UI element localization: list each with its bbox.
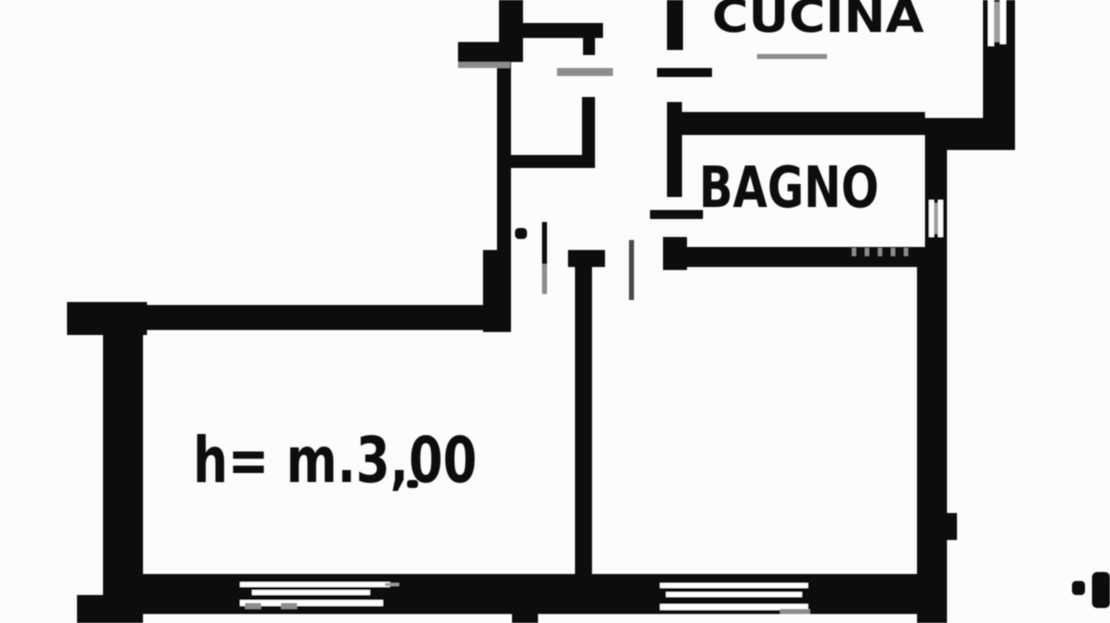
hall-wall-tab — [458, 42, 500, 62]
bath-rail-tick-1 — [852, 248, 856, 256]
bath-rail-tick-2 — [865, 248, 869, 256]
kitchen-room-label: CUCINA — [712, 0, 924, 43]
living-left-foot — [77, 595, 143, 623]
left-window-tick-b — [281, 603, 297, 609]
left-window-lead — [385, 583, 399, 586]
kitchen-window-slit-2 — [1000, 0, 1006, 44]
bath-window-slit-2 — [938, 200, 943, 237]
living-door-leaf-upper — [542, 222, 547, 264]
hall-door-leaf — [629, 240, 634, 300]
right-wall-bump — [947, 513, 957, 540]
floor-plan-page: CUCINA BAGNO h= m.3,00 — [0, 0, 1110, 623]
kitchen-left-wall — [667, 0, 683, 50]
bath-door-sill — [650, 210, 703, 219]
bath-top-wall — [678, 112, 925, 135]
living-door-hinge-dot — [515, 228, 527, 239]
living-left-wall — [103, 330, 143, 623]
closet-right-stub — [583, 38, 595, 55]
bath-rail-tick-5 — [904, 248, 908, 256]
living-door-leaf-lower — [542, 264, 547, 294]
partition-wall — [575, 252, 592, 582]
bath-rail-tick-4 — [891, 248, 895, 256]
kitchen-window-mullion — [994, 2, 1000, 42]
bath-window-mullion — [934, 203, 938, 234]
bathroom-room-label: BAGNO — [699, 155, 879, 221]
left-window-slit-2 — [252, 590, 370, 595]
closet-bottom-wall — [505, 155, 595, 168]
bath-bottom-corner — [663, 237, 687, 270]
bath-window-slit-1 — [929, 200, 934, 237]
left-window-slit-3 — [240, 600, 383, 606]
right-window-tick — [780, 609, 810, 614]
right-window-slit-1 — [660, 583, 808, 588]
bath-rail-tick-3 — [878, 248, 882, 256]
partition-cap — [568, 250, 605, 267]
left-window-slit-1 — [240, 582, 390, 587]
edge-mark-clipped — [1092, 572, 1110, 608]
plan-walls-layer — [67, 0, 1110, 623]
closet-door-leaf — [557, 68, 613, 76]
bottom-wall-nub — [512, 610, 538, 623]
floor-plan-canvas: CUCINA BAGNO h= m.3,00 — [0, 0, 1110, 623]
hall-tab-shadow — [458, 62, 510, 68]
kitchen-door-sill — [657, 68, 712, 77]
closet-right-wall — [582, 97, 595, 160]
bath-left-wall — [667, 102, 682, 197]
kitchen-window-slit-1 — [988, 0, 994, 46]
edge-mark-small — [1072, 581, 1085, 595]
right-window-slit-2 — [666, 592, 802, 597]
kitchen-door-leaf — [757, 54, 827, 59]
right-wall — [917, 247, 947, 623]
left-window-tick-a — [245, 603, 261, 609]
hall-wall-upper — [499, 0, 523, 62]
closet-top-wall — [522, 23, 603, 38]
ceiling-height-label: h= m.3,00 — [193, 424, 477, 497]
